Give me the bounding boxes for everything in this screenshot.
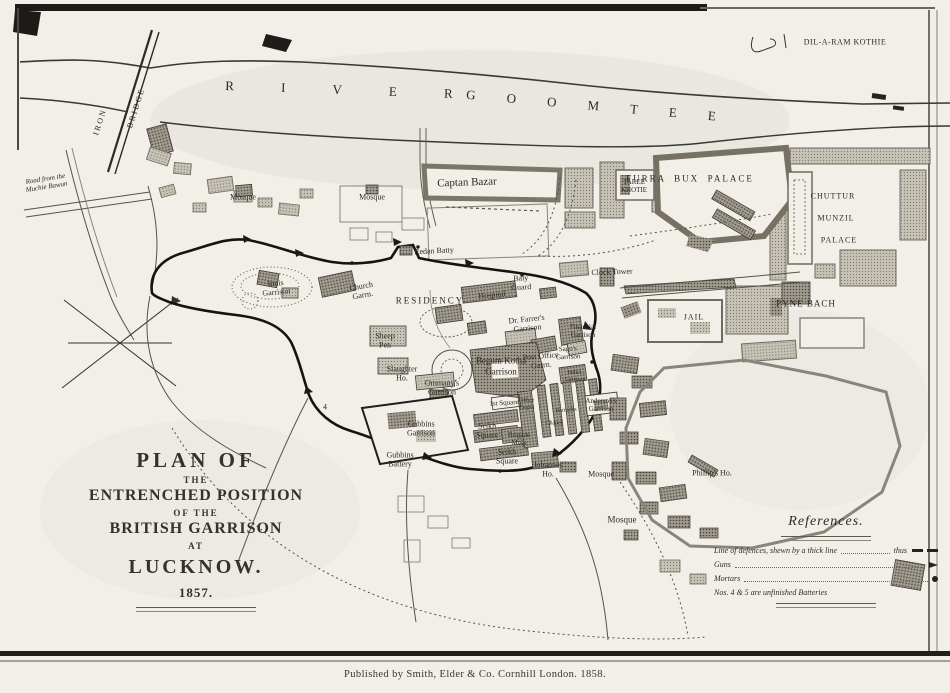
map-canvas: DIL-A-RAM KOTHIER I V E RG O O M T E EIR… (0, 0, 950, 693)
legend-row-note: Nos. 4 & 5 are unfinished Batteries (714, 588, 938, 597)
references-heading: References. (714, 514, 938, 530)
title-line-the: THE (86, 476, 306, 485)
map-title-block: PLAN OF THE ENTRENCHED POSITION OF THE B… (86, 450, 306, 612)
legend-leader (744, 576, 928, 582)
references-legend: References. Line of defences, shewn by a… (714, 514, 938, 608)
title-line-entrenched: ENTRENCHED POSITION (86, 488, 306, 504)
title-line-of-the: OF THE (86, 509, 306, 518)
title-flourish (136, 607, 256, 612)
thick-line-symbol (912, 549, 938, 552)
legend-defences-label: Line of defences, shewn by a thick line (714, 546, 837, 555)
legend-mortars-label: Mortars (714, 574, 740, 583)
legend-guns-label: Guns (714, 560, 731, 569)
legend-note: Nos. 4 & 5 are unfinished Batteries (714, 588, 827, 597)
references-flourish-bottom (776, 603, 876, 608)
mortar-symbol-icon (932, 576, 938, 582)
legend-leader (841, 548, 890, 554)
legend-row-defences: Line of defences, shewn by a thick line … (714, 546, 938, 555)
title-line-lucknow: LUCKNOW. (86, 556, 306, 579)
legend-row-mortars: Mortars (714, 574, 938, 583)
title-line-year: 1857. (86, 585, 306, 601)
title-line-at: AT (86, 542, 306, 551)
gun-symbol-icon (929, 562, 938, 568)
publisher-imprint: Published by Smith, Elder & Co. Cornhill… (0, 669, 950, 680)
references-flourish-top (781, 536, 871, 541)
legend-row-guns: Guns (714, 560, 938, 569)
legend-defences-thus: thus (894, 546, 907, 555)
legend-leader (735, 562, 925, 568)
title-line-british-garrison: BRITISH GARRISON (86, 521, 306, 537)
title-line-plan-of: PLAN OF (86, 450, 306, 471)
